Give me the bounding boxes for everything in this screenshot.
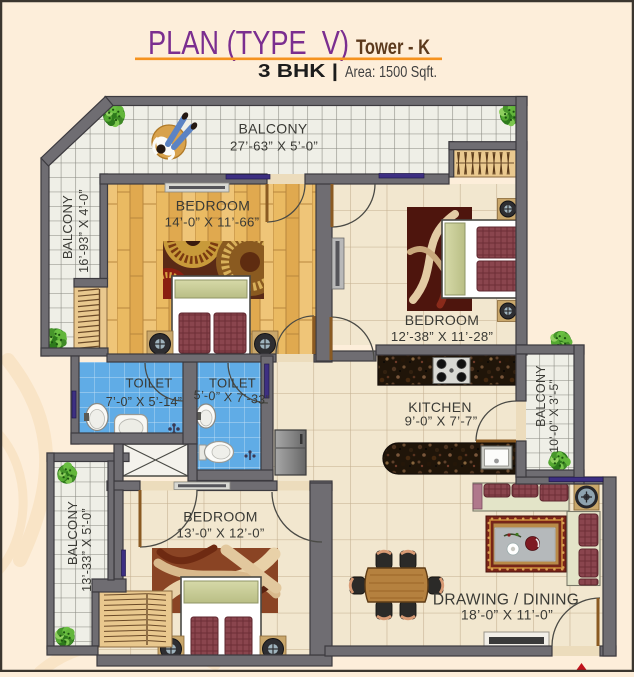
svg-text:TOILET: TOILET	[125, 376, 172, 391]
svg-text:Area: 1500 Sqft.: Area: 1500 Sqft.	[345, 64, 437, 81]
svg-text:27’-63” X 5’-0”: 27’-63” X 5’-0”	[230, 139, 318, 154]
svg-text:10’-0” X 3’-5”: 10’-0” X 3’-5”	[547, 379, 561, 453]
svg-text:18’-0” X 11’-0”: 18’-0” X 11’-0”	[461, 607, 553, 623]
svg-text:BEDROOM: BEDROOM	[405, 312, 479, 328]
svg-text:13’-33” X 5’-0”: 13’-33” X 5’-0”	[80, 508, 94, 592]
svg-text:13’-0” X 12’-0”: 13’-0” X 12’-0”	[176, 526, 264, 541]
svg-text:3 BHK |: 3 BHK |	[258, 61, 338, 81]
svg-text:BALCONY: BALCONY	[238, 121, 307, 137]
svg-text:BALCONY: BALCONY	[534, 365, 548, 427]
svg-text:BEDROOM: BEDROOM	[183, 509, 257, 525]
svg-text:PLAN (TYPE V): PLAN (TYPE V)	[148, 24, 349, 61]
svg-text:7’-0” X 5’-14”: 7’-0” X 5’-14”	[106, 395, 182, 409]
svg-text:BEDROOM: BEDROOM	[176, 198, 250, 214]
svg-text:BALCONY: BALCONY	[65, 501, 80, 565]
svg-text:16’-93” X 4’-0”: 16’-93” X 4’-0”	[77, 189, 91, 273]
svg-text:Tower - K: Tower - K	[356, 35, 430, 59]
svg-text:BALCONY: BALCONY	[60, 195, 75, 259]
svg-text:9’-0” X 7’-7”: 9’-0” X 7’-7”	[405, 414, 478, 429]
svg-text:14’-0” X 11’-66”: 14’-0” X 11’-66”	[165, 215, 260, 230]
svg-text:TOILET: TOILET	[209, 376, 256, 391]
svg-text:12’-38” X 11’-28”: 12’-38” X 11’-28”	[391, 329, 493, 344]
